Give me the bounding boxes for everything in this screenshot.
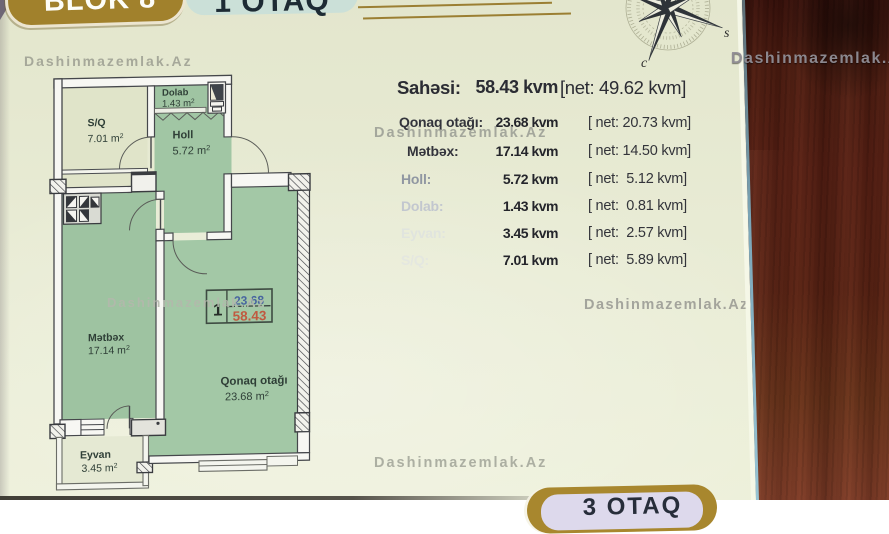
svg-text:3.45 m2: 3.45 m2: [82, 462, 118, 475]
svg-text:5.72 m2: 5.72 m2: [173, 143, 211, 157]
svg-text:1.43 m2: 1.43 m2: [162, 98, 195, 110]
svg-text:S/Q: S/Q: [88, 117, 106, 129]
svg-text:17.14 m2: 17.14 m2: [88, 344, 130, 357]
svg-text:23.68 m2: 23.68 m2: [225, 389, 269, 403]
svg-text:58.43: 58.43: [233, 308, 267, 324]
svg-text:Eyvan: Eyvan: [80, 449, 111, 462]
svg-text:Mətbəx: Mətbəx: [88, 332, 124, 345]
svg-text:Dolab: Dolab: [162, 87, 189, 99]
svg-text:7.01 m2: 7.01 m2: [88, 133, 124, 146]
svg-text:Qonaq otağı: Qonaq otağı: [221, 375, 288, 388]
svg-text:Holl: Holl: [173, 129, 194, 141]
